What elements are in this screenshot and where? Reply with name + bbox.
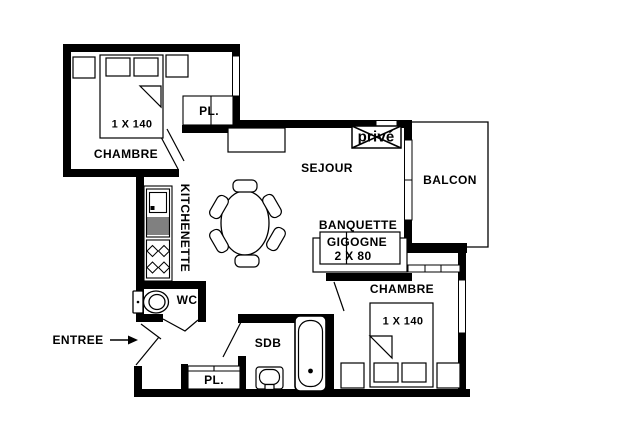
label-prive: privé (358, 130, 395, 145)
pillow (134, 58, 158, 76)
floor-plan-drawing (0, 0, 624, 439)
label-closet-bottom: PL. (204, 374, 224, 386)
door-entrance (141, 324, 161, 339)
label-bedroom2: CHAMBRE (370, 283, 434, 295)
chair (233, 180, 257, 192)
pillow (402, 363, 426, 382)
bathtub (295, 316, 326, 391)
floor-plan-canvas: CHAMBRE 1 X 140 PL. KITCHENETTE SEJOUR p… (0, 0, 624, 439)
label-gigogne: GIGOGNE (327, 236, 387, 248)
toilet (133, 291, 169, 313)
label-bedroom2-bed: 1 X 140 (383, 317, 424, 328)
label-sejour: SEJOUR (301, 162, 353, 174)
window-bedroom1 (233, 56, 240, 96)
pillow (374, 363, 398, 382)
window-bedroom2-right (459, 280, 466, 333)
label-kitchenette: KITCHENETTE (179, 184, 191, 272)
stove (147, 240, 170, 278)
label-2x80: 2 X 80 (334, 250, 371, 262)
label-banquette: BANQUETTE (319, 219, 397, 231)
label-entree: ENTREE (52, 334, 103, 346)
door-bedroom1 (167, 129, 184, 161)
door-wc (163, 319, 198, 331)
label-bedroom1: CHAMBRE (94, 148, 158, 160)
door-bathroom (223, 322, 241, 357)
pillow (106, 58, 130, 76)
entrance-arrow-icon (110, 336, 138, 345)
kitchen-unit (144, 186, 172, 281)
label-balcon: BALCON (423, 174, 477, 186)
window-bedroom2-top (408, 265, 460, 272)
sink (256, 367, 283, 390)
chair (235, 255, 259, 267)
door-bedroom2 (334, 282, 344, 311)
label-bedroom1-bed: 1 X 140 (112, 120, 153, 131)
label-sdb: SDB (255, 337, 282, 349)
label-wc: WC (177, 294, 198, 306)
label-closet-top: PL. (199, 105, 219, 117)
sideboard (228, 128, 285, 152)
